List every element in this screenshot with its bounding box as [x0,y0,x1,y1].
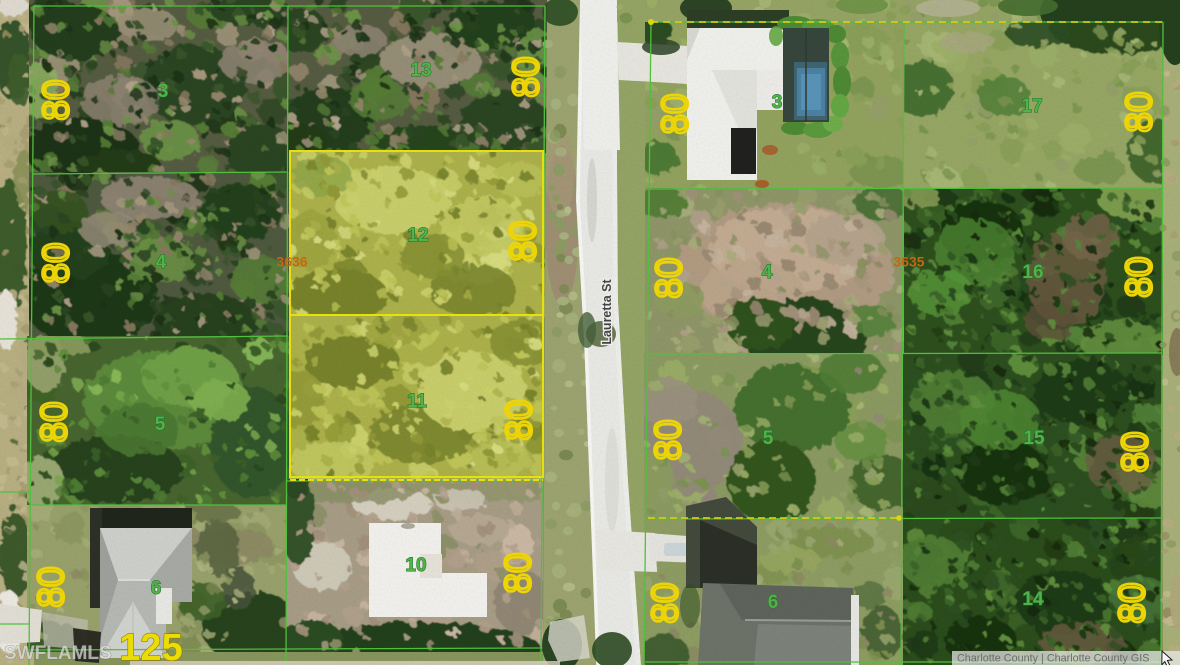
svg-text:15: 15 [1023,428,1045,449]
svg-text:80: 80 [503,220,544,261]
svg-text:3635: 3635 [893,254,924,270]
svg-text:3: 3 [158,81,169,102]
svg-text:80: 80 [1119,91,1160,132]
svg-text:80: 80 [36,242,77,283]
svg-text:80: 80 [499,399,540,440]
svg-text:6: 6 [151,578,162,599]
svg-text:80: 80 [1119,256,1160,297]
svg-text:80: 80 [1115,431,1156,472]
svg-text:4: 4 [156,252,167,273]
svg-text:13: 13 [410,60,431,81]
svg-text:80: 80 [31,566,72,607]
svg-text:3636: 3636 [276,254,307,270]
svg-text:5: 5 [763,428,774,449]
svg-text:80: 80 [645,582,686,623]
svg-text:6: 6 [768,592,779,613]
svg-text:17: 17 [1021,96,1042,117]
svg-text:Lauretta St: Lauretta St [600,279,614,345]
svg-text:12: 12 [407,225,428,246]
svg-text:80: 80 [1112,582,1153,623]
svg-text:3: 3 [772,92,783,113]
svg-text:80: 80 [34,401,75,442]
svg-text:16: 16 [1022,262,1043,283]
svg-text:SWFLAMLS: SWFLAMLS [4,643,112,664]
svg-text:80: 80 [649,257,690,298]
svg-text:80: 80 [655,93,696,134]
svg-text:10: 10 [405,555,426,576]
svg-text:80: 80 [498,552,539,593]
svg-text:14: 14 [1022,589,1044,610]
svg-text:125: 125 [119,627,182,665]
svg-text:Charlotte County | Charlotte C: Charlotte County | Charlotte County GIS [957,653,1149,665]
svg-text:80: 80 [506,56,547,97]
svg-text:5: 5 [155,414,166,435]
svg-text:4: 4 [762,262,773,283]
svg-text:11: 11 [407,391,428,412]
svg-text:80: 80 [36,79,77,120]
svg-text:80: 80 [648,419,689,460]
